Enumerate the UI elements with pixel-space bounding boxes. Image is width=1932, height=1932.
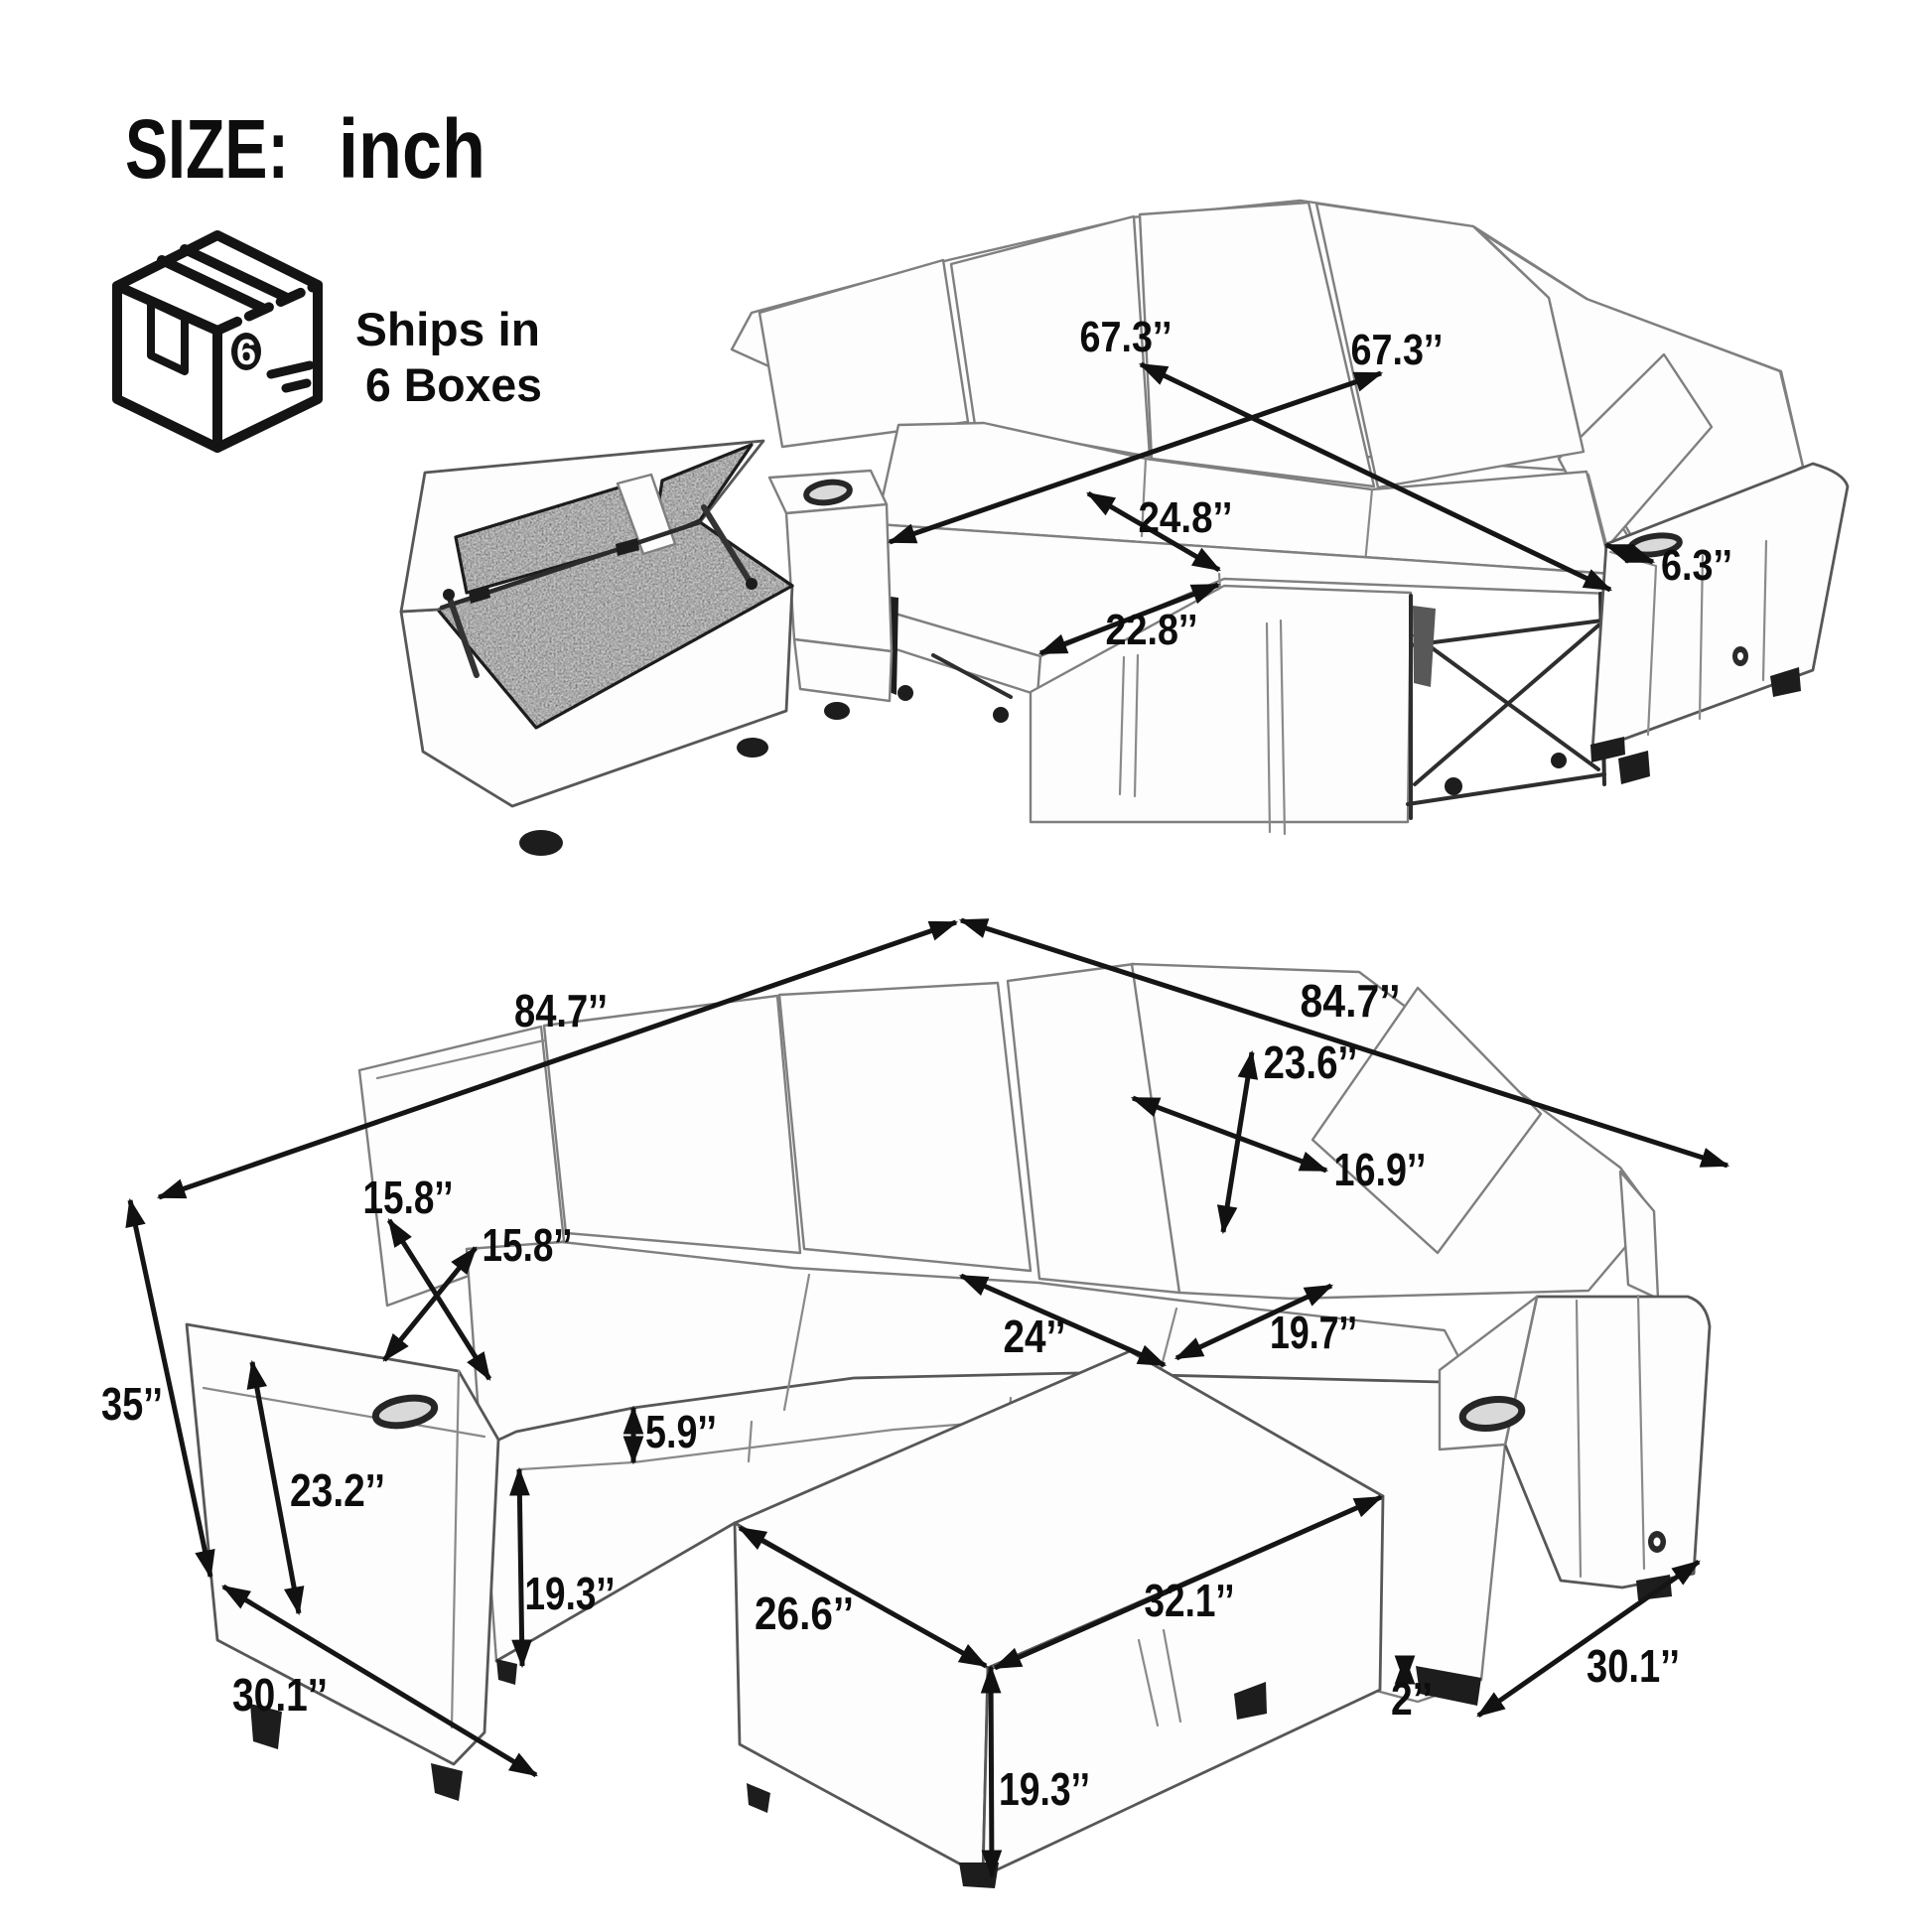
svg-text:19.3’’: 19.3’’	[525, 1568, 616, 1619]
svg-text:inch: inch	[339, 102, 485, 196]
svg-text:6: 6	[236, 332, 256, 372]
svg-text:30.1’’: 30.1’’	[232, 1669, 328, 1721]
svg-text:30.1’’: 30.1’’	[1587, 1640, 1680, 1692]
svg-text:2’’: 2’’	[1391, 1673, 1433, 1725]
svg-text:15.8’’: 15.8’’	[363, 1172, 454, 1223]
svg-text:16.9’’: 16.9’’	[1334, 1144, 1427, 1195]
svg-text:Ships in: Ships in	[355, 303, 540, 355]
svg-text:5.9’’: 5.9’’	[645, 1406, 717, 1457]
svg-text:23.2’’: 23.2’’	[290, 1464, 385, 1516]
svg-text:24’’: 24’’	[1004, 1311, 1066, 1362]
svg-text:23.6’’: 23.6’’	[1264, 1036, 1358, 1088]
svg-text:6.3’’: 6.3’’	[1661, 541, 1732, 590]
svg-text:22.8’’: 22.8’’	[1106, 606, 1198, 654]
svg-text:67.3’’: 67.3’’	[1351, 326, 1444, 374]
svg-text:24.8’’: 24.8’’	[1139, 493, 1233, 542]
svg-text:SIZE:: SIZE:	[125, 102, 289, 196]
svg-text:26.6’’: 26.6’’	[755, 1587, 854, 1639]
svg-text:32.1’’: 32.1’’	[1145, 1575, 1235, 1626]
svg-text:84.7’’: 84.7’’	[1301, 975, 1401, 1027]
svg-text:19.7’’: 19.7’’	[1270, 1307, 1357, 1358]
svg-text:19.3’’: 19.3’’	[999, 1763, 1090, 1815]
svg-text:15.8’’: 15.8’’	[483, 1219, 573, 1271]
svg-text:6 Boxes: 6 Boxes	[365, 358, 542, 411]
svg-text:67.3’’: 67.3’’	[1080, 313, 1173, 361]
svg-text:35’’: 35’’	[101, 1378, 163, 1430]
svg-text:84.7’’: 84.7’’	[514, 985, 608, 1036]
